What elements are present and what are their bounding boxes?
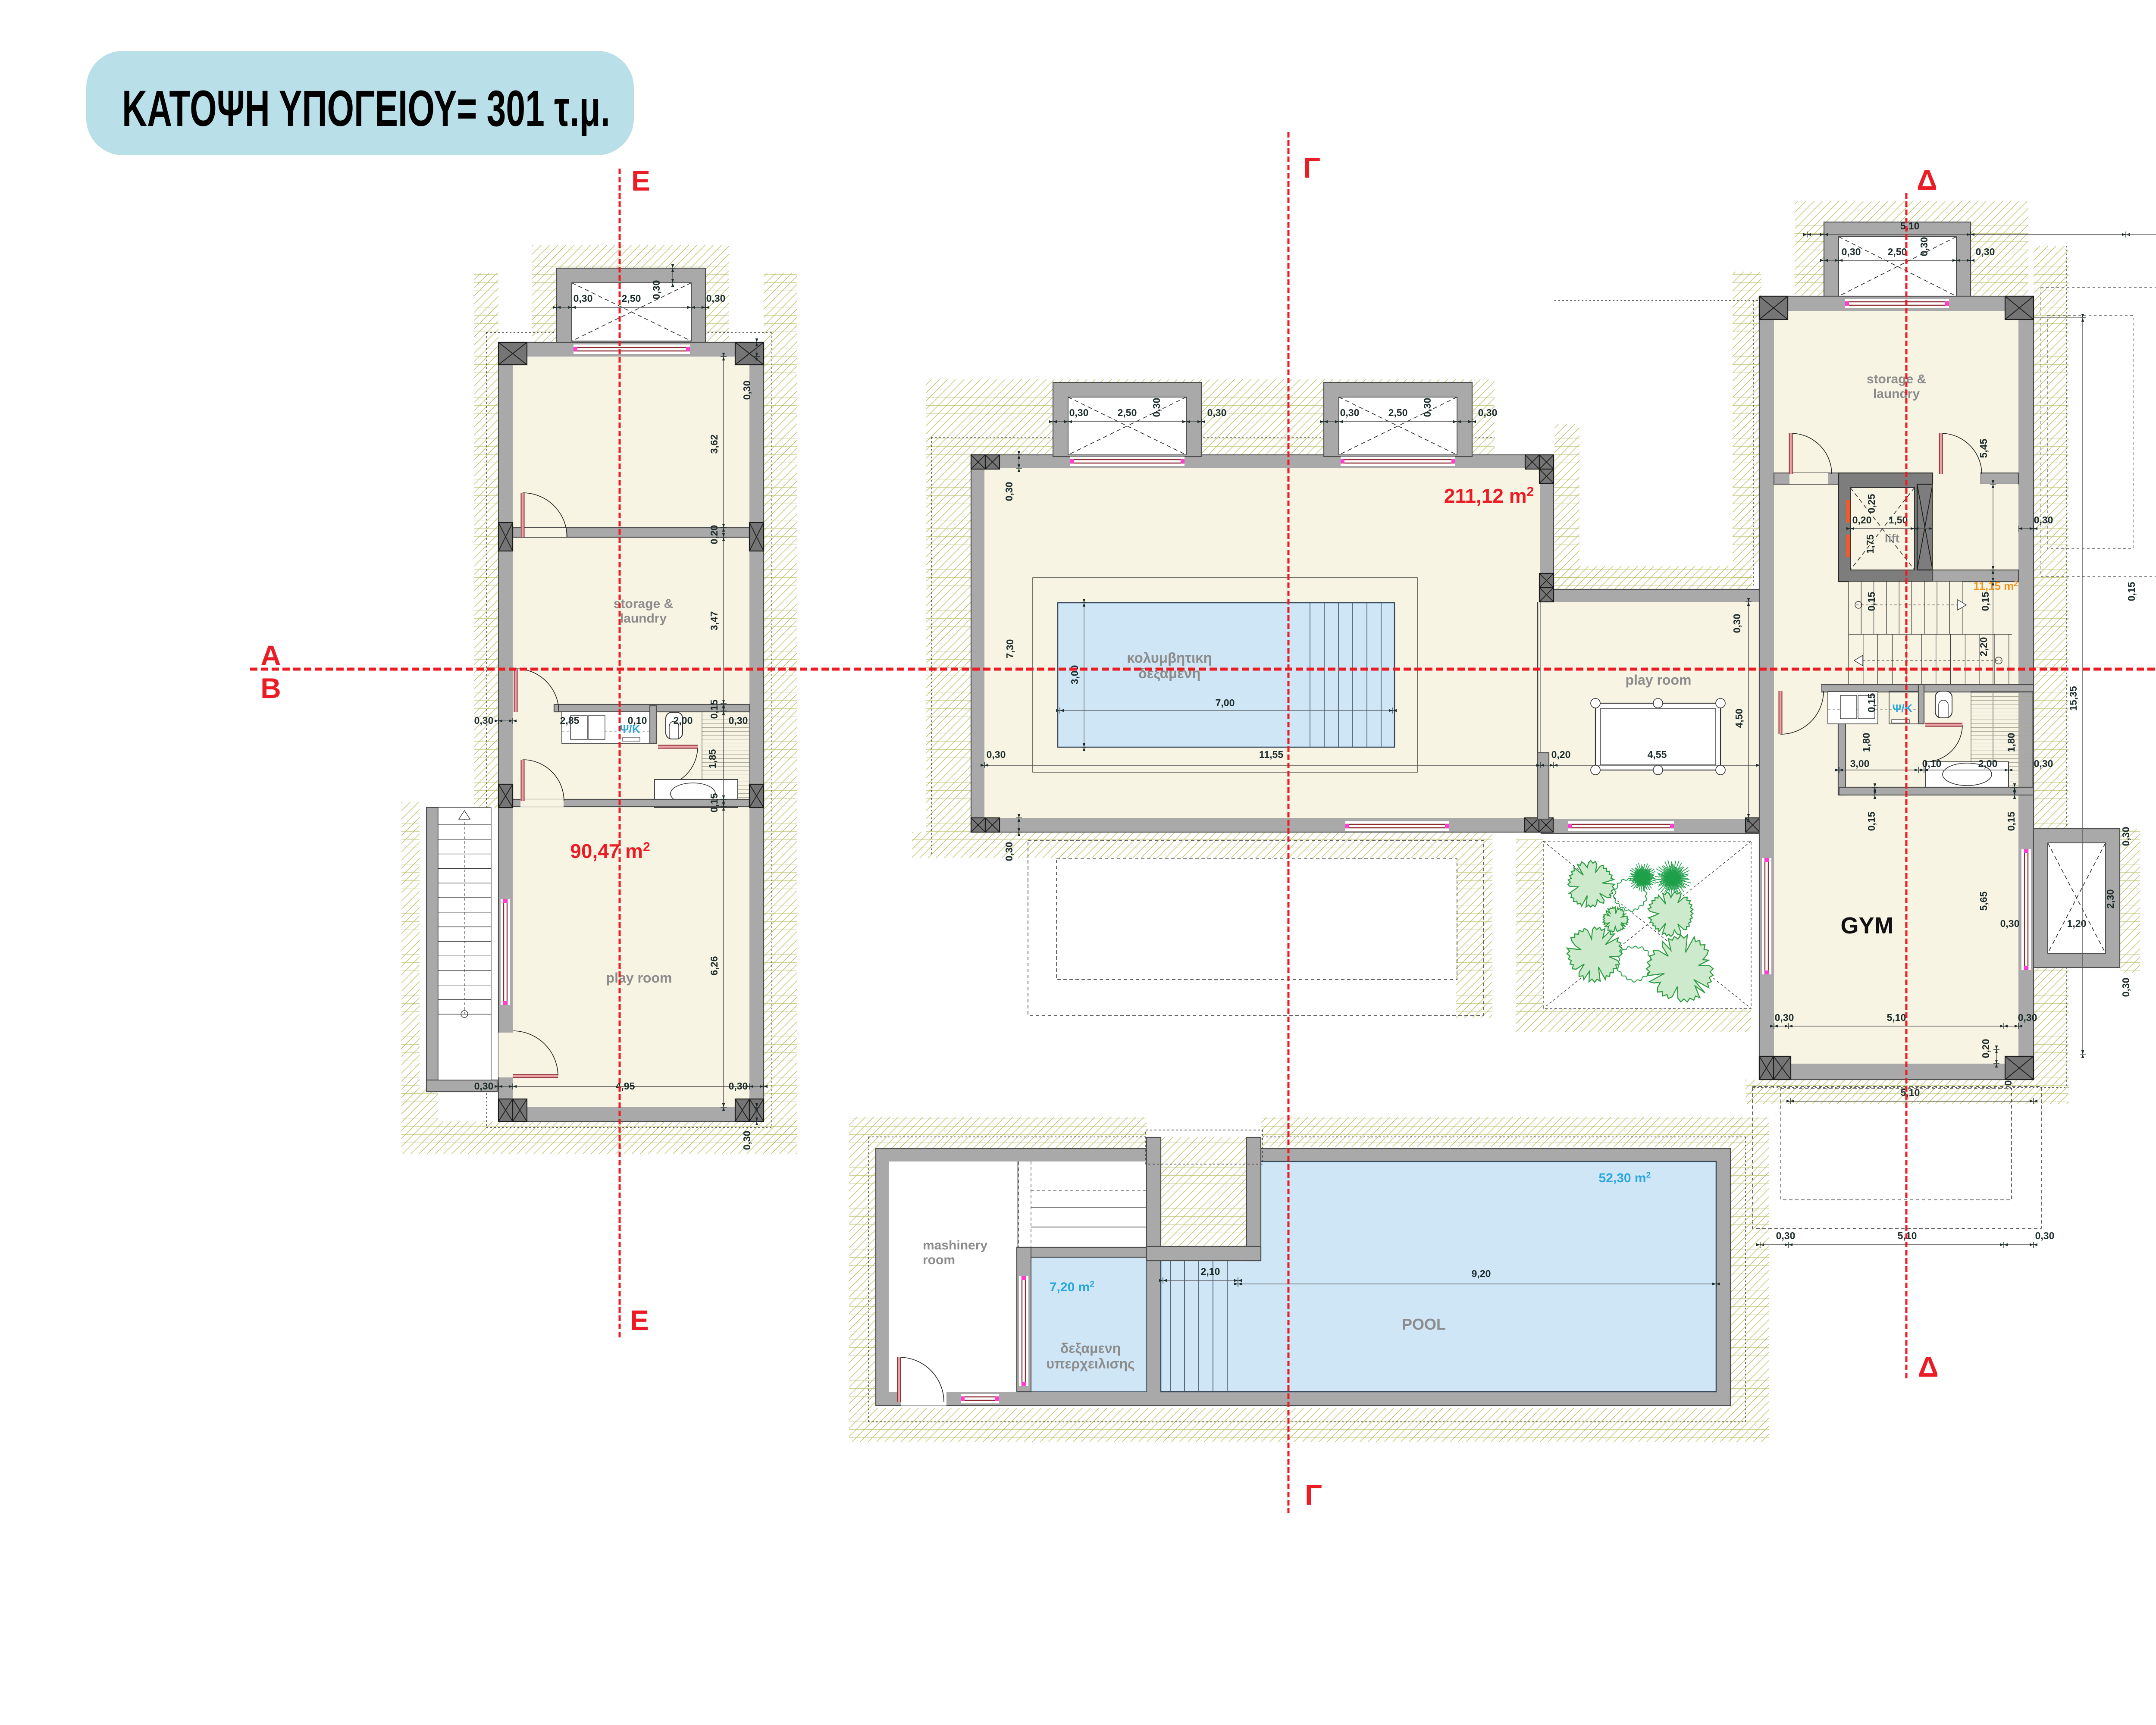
svg-text:0,20: 0,20 [708,525,720,545]
svg-text:0,30: 0,30 [2018,1012,2037,1023]
svg-text:0,30: 0,30 [1842,246,1861,257]
svg-text:6,26: 6,26 [708,956,720,976]
svg-text:Ψ/Κ: Ψ/Κ [1892,702,1912,715]
svg-text:0,30: 0,30 [1775,1012,1794,1023]
svg-text:0,30: 0,30 [729,715,748,726]
svg-text:GYM: GYM [1840,913,1893,939]
svg-text:0,30: 0,30 [2034,514,2053,526]
svg-text:0,15: 0,15 [1980,592,1991,611]
svg-text:0,15: 0,15 [1866,693,1877,712]
svg-text:4,55: 4,55 [1648,749,1667,760]
svg-text:0,30: 0,30 [987,749,1006,760]
svg-text:υπερχειλισης: υπερχειλισης [1046,1356,1134,1371]
svg-text:0,30: 0,30 [729,1080,748,1092]
svg-text:2,00: 2,00 [1978,758,1998,769]
svg-text:5,10: 5,10 [1887,1012,1906,1023]
svg-text:1,80: 1,80 [2006,733,2017,752]
svg-text:7,30: 7,30 [1004,639,1015,659]
svg-text:POOL: POOL [1402,1315,1446,1333]
svg-text:E: E [630,1304,649,1336]
svg-text:0,15: 0,15 [1866,811,1877,831]
svg-text:7,00: 7,00 [1216,697,1235,708]
svg-text:0,30: 0,30 [651,280,662,300]
svg-text:0,15: 0,15 [708,793,720,812]
svg-text:0,30: 0,30 [474,715,494,726]
svg-text:κολυμβητικη: κολυμβητικη [1127,650,1212,666]
svg-text:ΚΑΤΟΨΗ ΥΠΟΓΕΙΟΥ= 301 τ.μ.: ΚΑΤΟΨΗ ΥΠΟΓΕΙΟΥ= 301 τ.μ. [122,80,610,137]
svg-text:0,30: 0,30 [1151,398,1162,417]
svg-text:2,10: 2,10 [1201,1266,1220,1277]
svg-text:1,80: 1,80 [1861,733,1872,752]
svg-text:0,30: 0,30 [1731,614,1742,633]
svg-text:5,65: 5,65 [1978,891,1989,911]
svg-text:0,20: 0,20 [1551,749,1571,760]
svg-text:0,25: 0,25 [1866,494,1877,513]
svg-text:0,15: 0,15 [1866,592,1877,611]
svg-text:Γ: Γ [1305,1479,1322,1511]
svg-text:2,50: 2,50 [1888,246,1907,257]
svg-text:0,30: 0,30 [2000,918,2020,929]
svg-text:Γ: Γ [1303,152,1320,184]
svg-text:play room: play room [1626,672,1692,688]
svg-text:0,30: 0,30 [1776,1230,1796,1241]
svg-text:0,30: 0,30 [2120,827,2131,846]
svg-text:2,50: 2,50 [622,293,641,304]
svg-text:room: room [923,1253,955,1267]
svg-text:0,30: 0,30 [573,293,593,304]
svg-text:1,85: 1,85 [707,749,718,768]
svg-text:0,30: 0,30 [1976,246,1995,257]
svg-text:0,30: 0,30 [2120,978,2131,997]
svg-text:2,50: 2,50 [1118,407,1137,418]
svg-text:0,30: 0,30 [474,1080,494,1092]
svg-text:laundry: laundry [1873,387,1920,401]
svg-text:0,30: 0,30 [741,1131,752,1150]
svg-text:90,47 m2: 90,47 m2 [570,840,650,862]
svg-text:0,30: 0,30 [1003,842,1015,861]
svg-text:0,15: 0,15 [2006,811,2017,831]
svg-text:15,35: 15,35 [2068,686,2079,711]
svg-text:0,30: 0,30 [741,381,752,400]
svg-text:0,20: 0,20 [1852,514,1872,526]
svg-text:5,10: 5,10 [1901,1087,1920,1098]
svg-text:2,00: 2,00 [674,715,693,726]
svg-text:3,00: 3,00 [1850,758,1870,769]
svg-text:3,47: 3,47 [708,611,720,631]
svg-text:mashinery: mashinery [923,1238,987,1252]
svg-text:lift: lift [1885,532,1899,545]
svg-text:1,50: 1,50 [1889,514,1908,526]
svg-text:211,12 m2: 211,12 m2 [1444,485,1534,507]
svg-text:0,20: 0,20 [1980,1039,1991,1058]
svg-text:storage &: storage & [614,597,673,611]
svg-text:9,20: 9,20 [1472,1268,1491,1279]
svg-text:0,30: 0,30 [1478,407,1498,418]
svg-text:4,95: 4,95 [616,1080,635,1092]
svg-text:0,15: 0,15 [708,699,720,719]
svg-text:0,30: 0,30 [1207,407,1227,418]
svg-text:2,50: 2,50 [1388,407,1408,418]
svg-text:A: A [260,639,281,671]
svg-text:laundry: laundry [620,611,667,626]
svg-text:δεξαμενη: δεξαμενη [1060,1340,1121,1356]
svg-text:E: E [631,165,650,197]
svg-text:0,30: 0,30 [2034,758,2053,769]
svg-text:7,20 m2: 7,20 m2 [1050,1280,1094,1295]
svg-text:0,30: 0,30 [1340,407,1360,418]
svg-text:Δ: Δ [1917,164,1937,196]
svg-text:4,50: 4,50 [1733,709,1745,728]
svg-text:0,30: 0,30 [1069,407,1089,418]
svg-text:0,30: 0,30 [1003,482,1015,501]
svg-text:play room: play room [606,970,672,986]
svg-text:1,75: 1,75 [1865,534,1876,554]
svg-text:2,85: 2,85 [560,715,580,726]
svg-text:11,55: 11,55 [1259,749,1283,760]
svg-text:0,30: 0,30 [706,293,726,304]
svg-text:5,45: 5,45 [1978,438,1989,458]
svg-text:2,30: 2,30 [2105,889,2116,909]
svg-text:B: B [260,672,281,704]
svg-text:2,20: 2,20 [1978,637,1989,657]
svg-text:0,30: 0,30 [2035,1230,2055,1241]
svg-text:52,30 m2: 52,30 m2 [1599,1171,1651,1186]
svg-text:5,10: 5,10 [1900,220,1920,232]
svg-text:0,10: 0,10 [1922,758,1942,769]
svg-text:0,30: 0,30 [1422,398,1433,417]
svg-text:3,62: 3,62 [708,435,720,454]
svg-text:0,15: 0,15 [2126,582,2137,601]
svg-text:1,20: 1,20 [2067,918,2087,929]
svg-text:0,30: 0,30 [1918,237,1930,257]
svg-text:storage &: storage & [1867,372,1926,386]
svg-text:Δ: Δ [1918,1351,1938,1383]
svg-text:0,10: 0,10 [628,715,647,726]
